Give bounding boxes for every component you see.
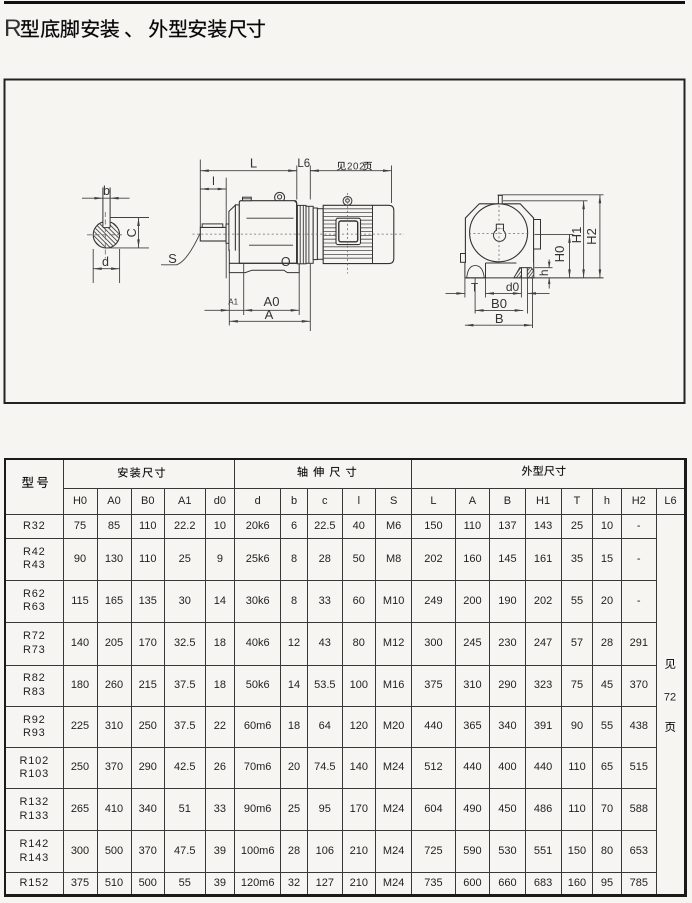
svg-text:b: b — [103, 184, 110, 198]
svg-text:L6: L6 — [297, 158, 310, 170]
svg-text:d0: d0 — [506, 280, 520, 294]
svg-text:H2: H2 — [584, 228, 599, 245]
svg-text:S: S — [168, 251, 177, 266]
svg-text:A1: A1 — [228, 297, 238, 306]
svg-text:h: h — [537, 269, 551, 276]
svg-text:d: d — [102, 255, 109, 269]
svg-text:C: C — [125, 228, 139, 237]
svg-text:202: 202 — [347, 161, 365, 172]
svg-text:B: B — [495, 311, 504, 326]
svg-text:O: O — [281, 255, 291, 269]
svg-text:H0: H0 — [552, 246, 567, 263]
svg-text:H1: H1 — [569, 227, 584, 244]
svg-text:72: 72 — [664, 691, 676, 703]
svg-text:l: l — [212, 174, 215, 188]
svg-text:B0: B0 — [491, 296, 507, 311]
svg-text:A: A — [265, 307, 274, 322]
svg-text:L: L — [250, 156, 257, 171]
